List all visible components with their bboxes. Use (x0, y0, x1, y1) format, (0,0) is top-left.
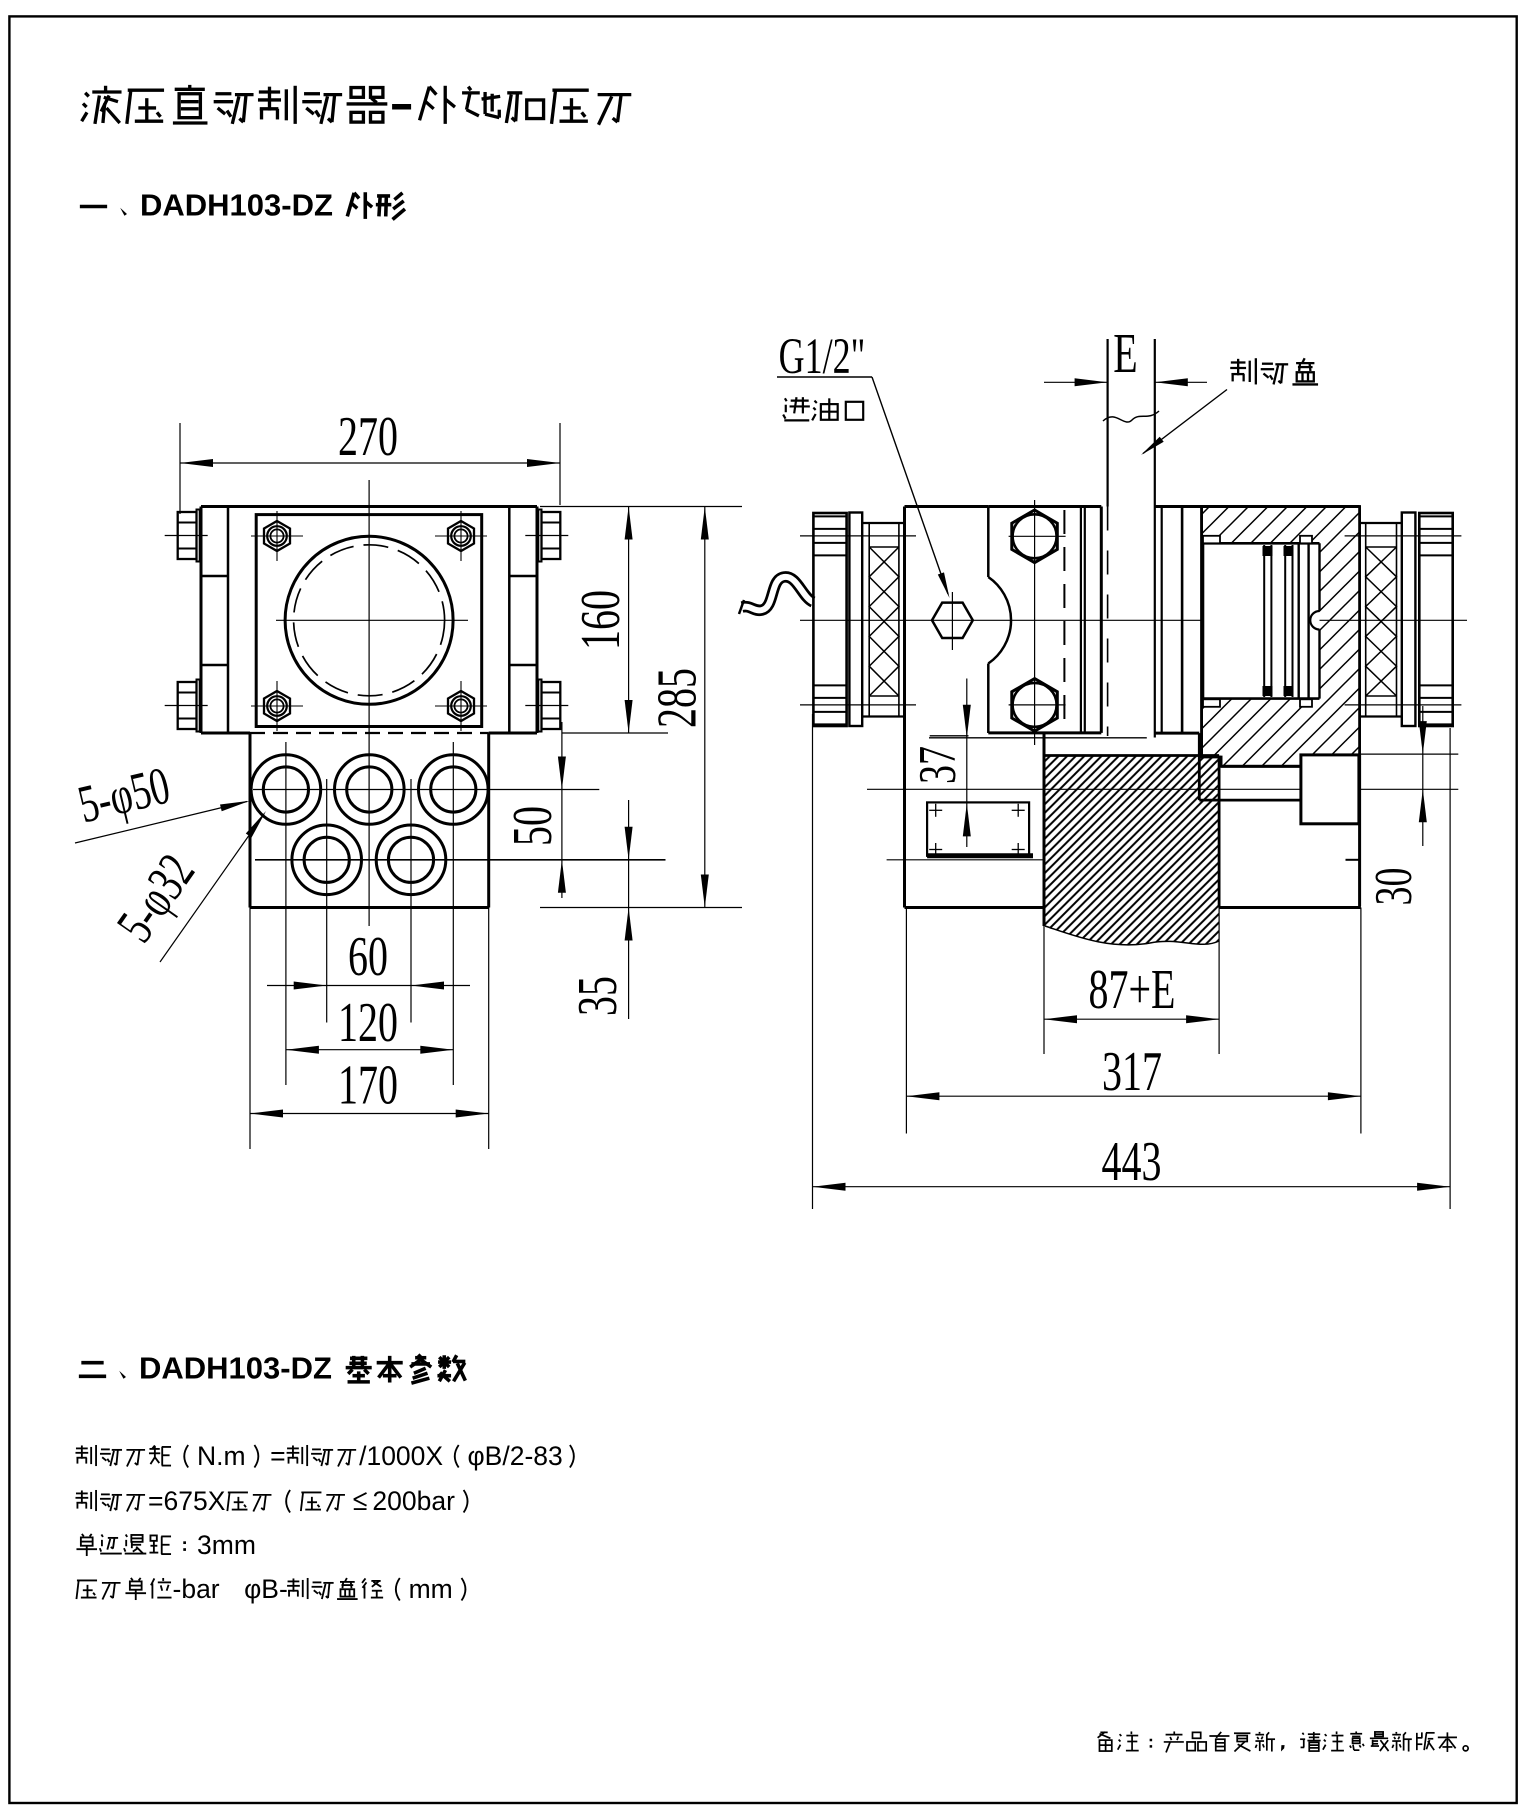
svg-text:37: 37 (908, 746, 967, 784)
svg-text:3mm: 3mm (197, 1530, 256, 1560)
svg-text:30: 30 (1364, 868, 1423, 906)
svg-text:60: 60 (348, 926, 388, 988)
svg-text:160: 160 (570, 590, 632, 650)
svg-text:170: 170 (338, 1054, 398, 1116)
svg-text:φB-: φB- (244, 1574, 288, 1604)
svg-text:285: 285 (646, 668, 708, 728)
svg-text:5-φ32: 5-φ32 (105, 843, 206, 952)
svg-text:50: 50 (502, 806, 564, 846)
svg-text:E: E (1113, 323, 1137, 385)
svg-text:317: 317 (1102, 1041, 1162, 1103)
svg-text:N.m: N.m (197, 1441, 246, 1471)
svg-text:=: = (270, 1441, 285, 1471)
svg-text:=675X: =675X (148, 1486, 226, 1516)
svg-text:270: 270 (338, 406, 398, 468)
svg-text:G1/2": G1/2" (779, 329, 866, 384)
svg-text:φB/2-83: φB/2-83 (468, 1441, 563, 1471)
svg-text:DADH103-DZ: DADH103-DZ (139, 1351, 332, 1386)
svg-text:443: 443 (1102, 1131, 1162, 1193)
svg-text:200bar: 200bar (372, 1486, 455, 1516)
svg-text:-bar: -bar (173, 1574, 220, 1604)
svg-text:35: 35 (567, 976, 629, 1016)
svg-text:120: 120 (338, 992, 398, 1054)
svg-text:/1000X: /1000X (359, 1441, 443, 1471)
svg-text:87+E: 87+E (1089, 959, 1176, 1021)
svg-text:DADH103-DZ: DADH103-DZ (140, 188, 333, 223)
svg-text:mm: mm (409, 1574, 453, 1604)
